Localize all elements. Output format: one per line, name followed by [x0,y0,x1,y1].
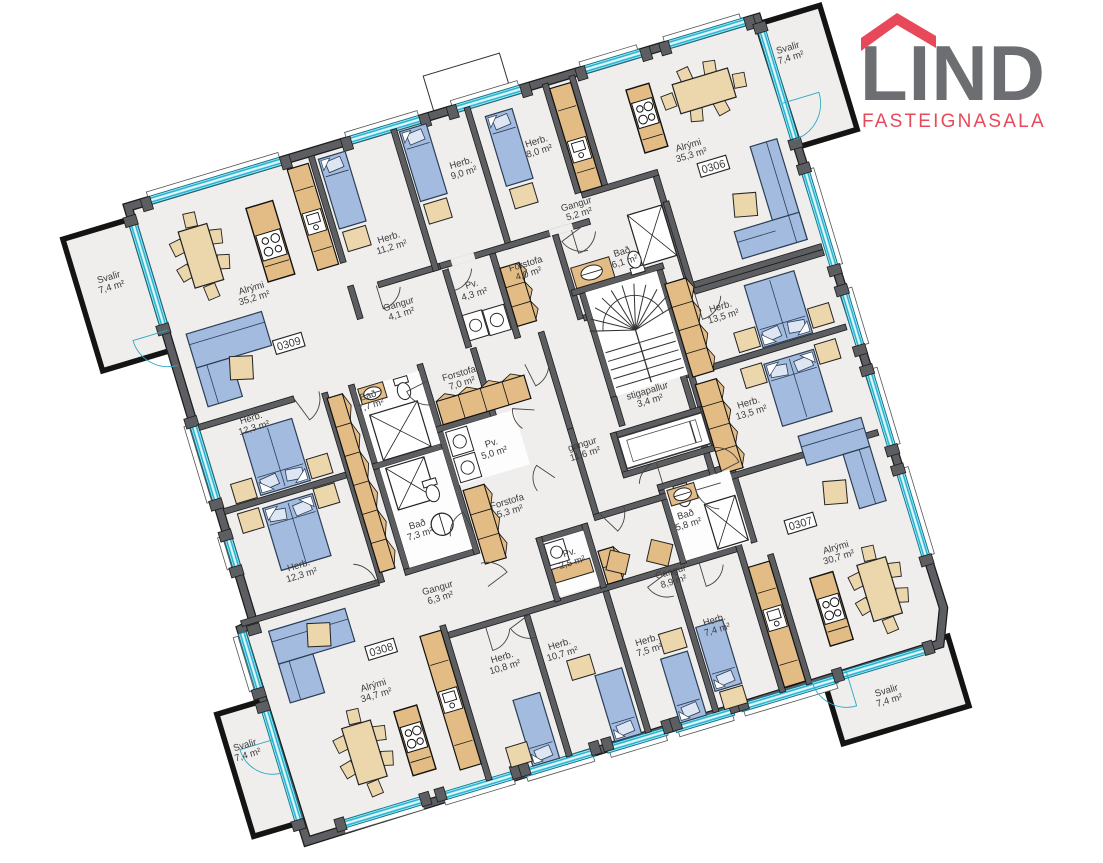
svg-text:FASTEIGNASALA: FASTEIGNASALA [862,111,1046,132]
svg-text:LIND: LIND [860,29,1046,117]
